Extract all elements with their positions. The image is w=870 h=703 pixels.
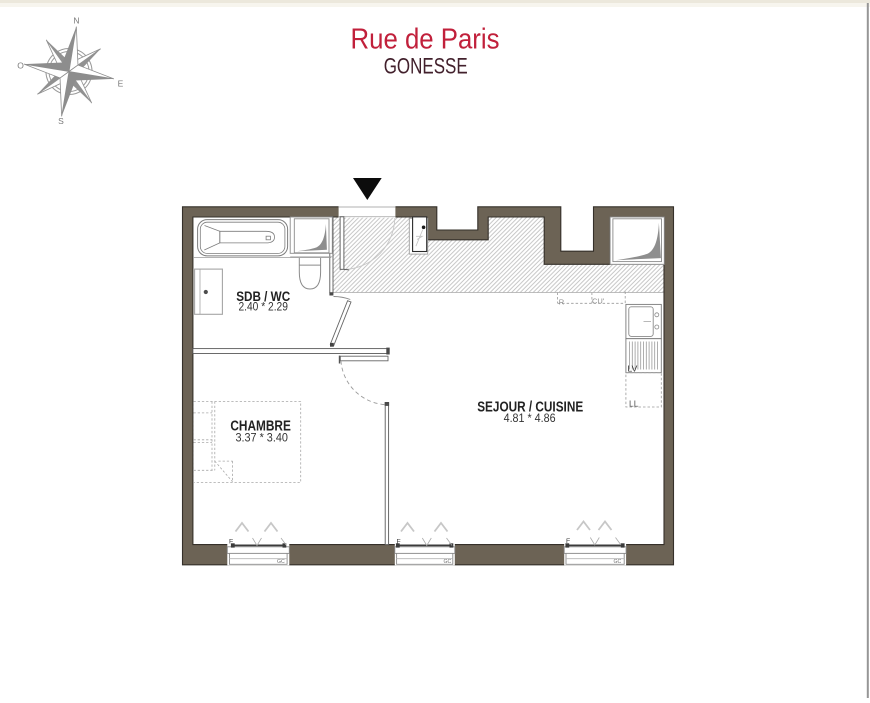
svg-text:3.37 * 3.40: 3.37 * 3.40: [235, 430, 288, 444]
svg-text:F: F: [566, 538, 570, 545]
svg-text:E: E: [118, 79, 124, 89]
svg-text:2.40 * 2.29: 2.40 * 2.29: [238, 302, 288, 314]
svg-text:GC: GC: [614, 559, 622, 565]
svg-text:R: R: [559, 297, 565, 306]
svg-text:GC: GC: [444, 559, 452, 565]
svg-text:GC: GC: [277, 559, 285, 565]
svg-text:LL: LL: [629, 399, 639, 409]
svg-text:CU': CU': [592, 296, 605, 305]
svg-text:S: S: [58, 116, 64, 126]
svg-text:4.81 * 4.86: 4.81 * 4.86: [504, 411, 556, 425]
svg-text:LV: LV: [628, 364, 638, 374]
svg-text:N: N: [73, 16, 79, 26]
svg-text:O: O: [17, 61, 24, 71]
svg-text:GONESSE: GONESSE: [384, 53, 468, 78]
svg-text:F: F: [397, 539, 401, 546]
svg-text:F: F: [229, 539, 233, 546]
svg-text:Rue de Paris: Rue de Paris: [351, 22, 500, 54]
